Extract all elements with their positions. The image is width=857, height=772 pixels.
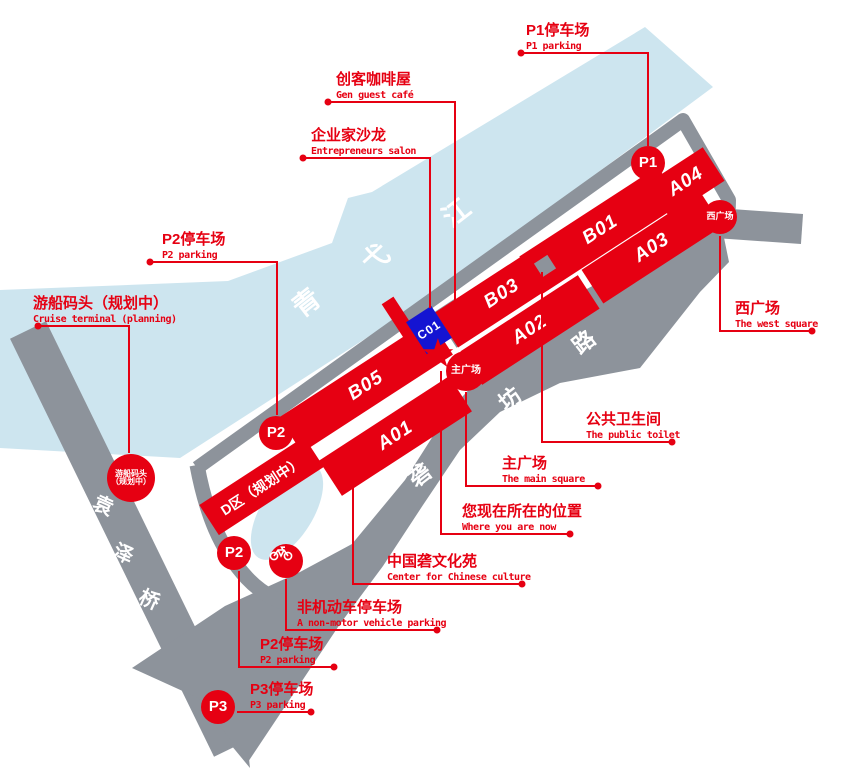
marker-cruise-terminal: 游船码头 （规划中）	[107, 454, 155, 502]
marker-p2-lower: P2	[217, 536, 251, 570]
building-b05-label: B05	[344, 366, 388, 405]
building-b03-label: B03	[480, 274, 524, 313]
building-a03-label: A03	[630, 228, 674, 267]
label-nonmotor-parking-en: A non-motor vehicle parking	[297, 617, 446, 630]
label-main-square-en: The main square	[502, 473, 585, 486]
label-public-toilet: 公共卫生间 The public toilet	[586, 411, 680, 442]
label-p3-parking-en: P3 parking	[250, 699, 313, 712]
label-culture-center-zh: 中国砻文化苑	[387, 553, 531, 571]
marker-p2-upper: P2	[259, 416, 293, 450]
label-p3-parking: P3停车场 P3 parking	[250, 681, 313, 712]
label-nonmotor-parking: 非机动车停车场 A non-motor vehicle parking	[297, 599, 446, 630]
label-you-are-here: 您现在所在的位置 Where you are now	[462, 503, 582, 534]
label-cruise-terminal-zh: 游船码头（规划中）	[33, 295, 177, 313]
label-maker-cafe: 创客咖啡屋 Gen guest café	[336, 71, 413, 102]
label-nonmotor-parking-zh: 非机动车停车场	[297, 599, 446, 617]
marker-p1: P1	[631, 146, 665, 180]
label-cruise-terminal-en: Cruise terminal (planning)	[33, 313, 177, 326]
label-p2-parking-lower-en: P2 parking	[260, 654, 323, 667]
label-p1-parking: P1停车场 P1 parking	[526, 22, 589, 53]
label-maker-cafe-zh: 创客咖啡屋	[336, 71, 413, 89]
label-p2-parking-upper-en: P2 parking	[162, 249, 225, 262]
label-salon: 企业家沙龙 Entrepreneurs salon	[311, 127, 416, 158]
marker-bike-parking	[269, 544, 303, 578]
bicycle-icon	[269, 544, 293, 561]
label-salon-zh: 企业家沙龙	[311, 127, 416, 145]
site-map: B01 B03 A03 A04 A02 B05 A01 D区（规划中） C01 …	[0, 0, 857, 772]
label-main-square-zh: 主广场	[502, 455, 585, 473]
label-public-toilet-zh: 公共卫生间	[586, 411, 680, 429]
label-p2-parking-lower-zh: P2停车场	[260, 636, 323, 654]
label-p3-parking-zh: P3停车场	[250, 681, 313, 699]
label-west-square-en: The west square	[735, 318, 818, 331]
building-a04-label: A04	[664, 162, 708, 201]
label-p1-parking-en: P1 parking	[526, 40, 589, 53]
label-p2-parking-upper-zh: P2停车场	[162, 231, 225, 249]
label-west-square-zh: 西广场	[735, 300, 818, 318]
terrain-layer	[0, 0, 857, 772]
label-culture-center-en: Center for Chinese culture	[387, 571, 531, 584]
label-main-square: 主广场 The main square	[502, 455, 585, 486]
label-cruise-terminal: 游船码头（规划中） Cruise terminal (planning)	[33, 295, 177, 326]
label-west-square: 西广场 The west square	[735, 300, 818, 331]
label-p2-parking-lower: P2停车场 P2 parking	[260, 636, 323, 667]
cruise-marker-line2: （规划中）	[111, 478, 151, 486]
marker-p3: P3	[201, 690, 235, 724]
label-salon-en: Entrepreneurs salon	[311, 145, 416, 158]
label-p2-parking-upper: P2停车场 P2 parking	[162, 231, 225, 262]
label-you-are-here-en: Where you are now	[462, 521, 582, 534]
building-a02-label: A02	[508, 310, 552, 349]
building-a01-label: A01	[374, 416, 418, 455]
label-culture-center: 中国砻文化苑 Center for Chinese culture	[387, 553, 531, 584]
label-you-are-here-zh: 您现在所在的位置	[462, 503, 582, 521]
you-are-here-star-icon: ★	[420, 334, 456, 374]
label-maker-cafe-en: Gen guest café	[336, 89, 413, 102]
label-public-toilet-en: The public toilet	[586, 429, 680, 442]
building-b01-label: B01	[579, 210, 623, 249]
marker-west-square: 西广场	[703, 200, 737, 234]
label-p1-parking-zh: P1停车场	[526, 22, 589, 40]
